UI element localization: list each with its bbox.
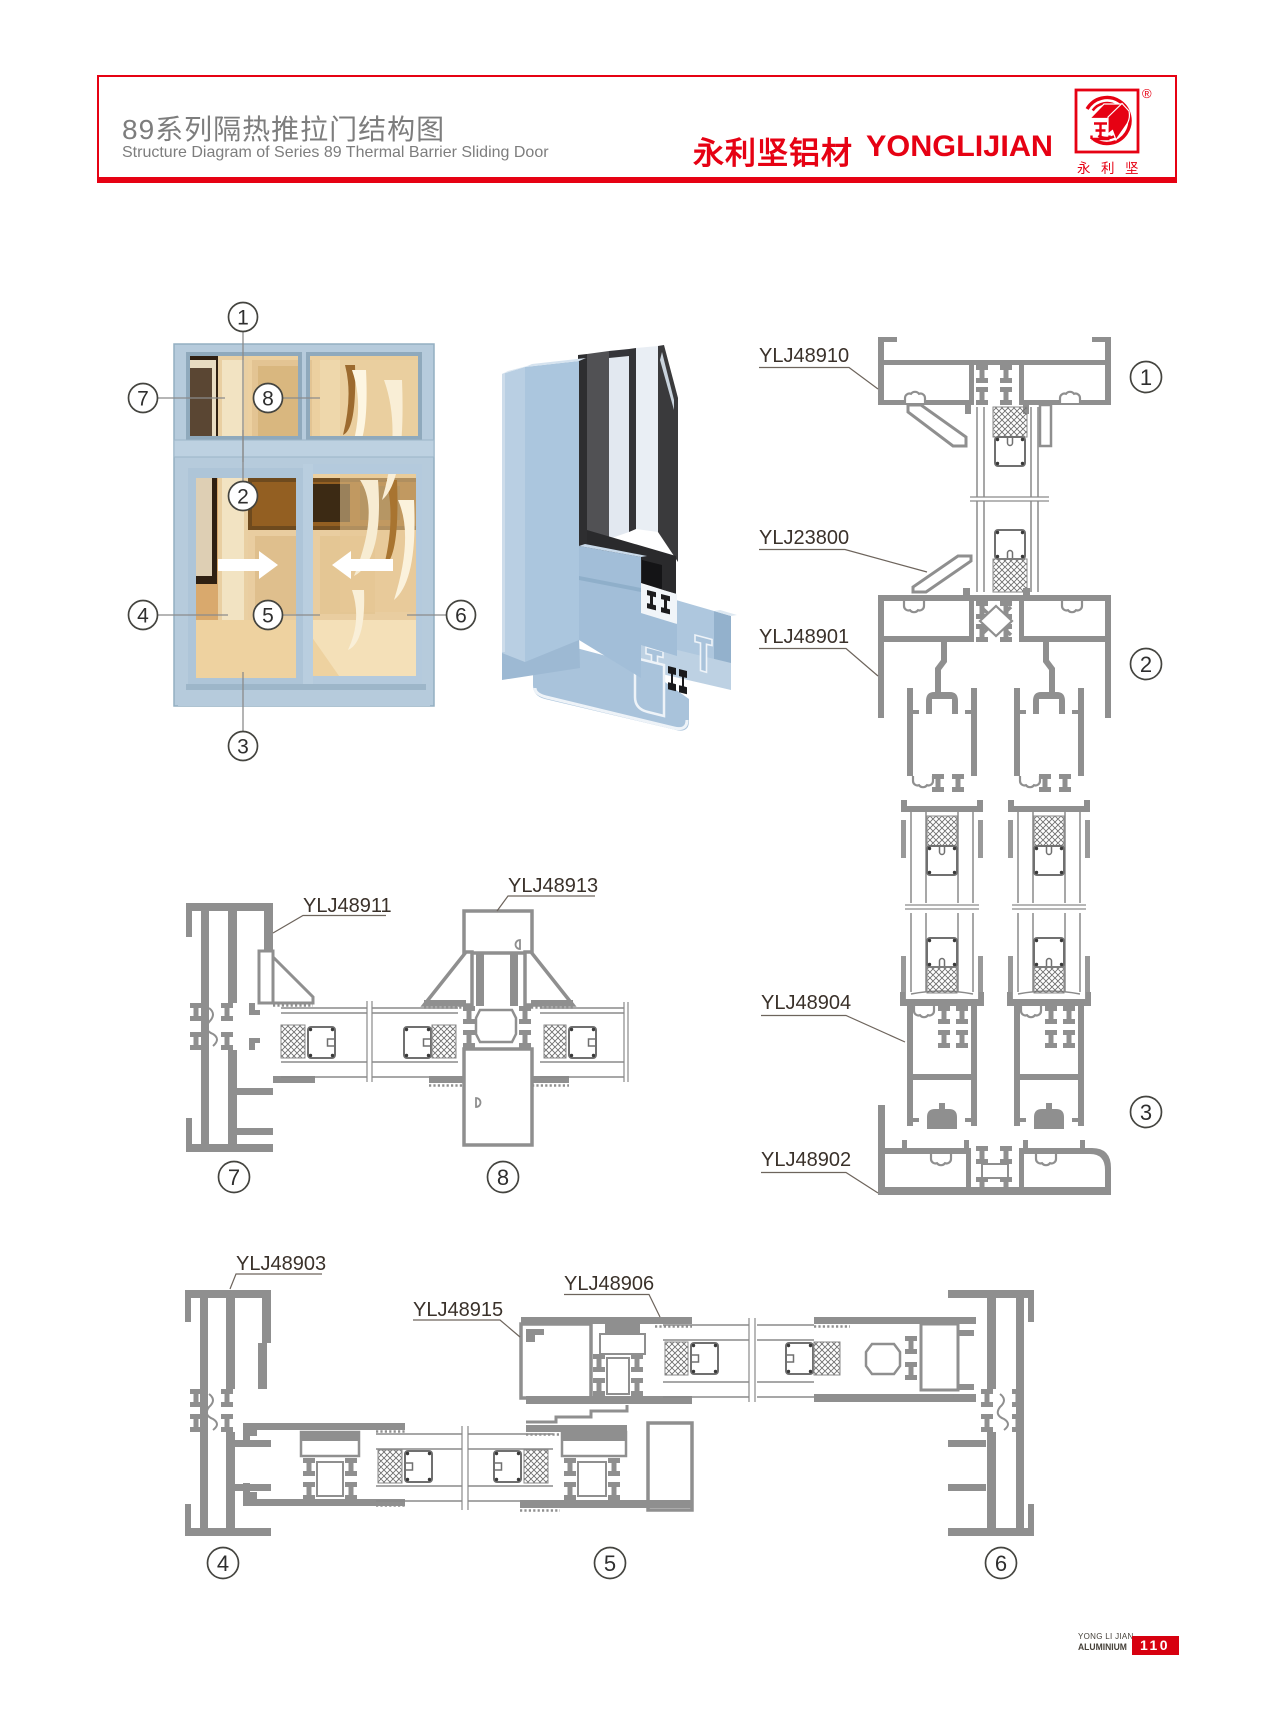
svg-text:6: 6 <box>995 1551 1007 1576</box>
svg-text:7: 7 <box>228 1165 240 1190</box>
svg-text:4: 4 <box>137 605 149 628</box>
svg-text:YLJ48911: YLJ48911 <box>303 895 392 917</box>
svg-text:5: 5 <box>262 605 274 628</box>
svg-text:7: 7 <box>137 388 149 411</box>
svg-text:YLJ48901: YLJ48901 <box>759 626 849 648</box>
svg-text:YLJ48902: YLJ48902 <box>761 1149 851 1171</box>
svg-text:YLJ48906: YLJ48906 <box>564 1273 654 1295</box>
svg-text:YLJ48903: YLJ48903 <box>236 1253 326 1275</box>
svg-text:YLJ23800: YLJ23800 <box>759 527 849 549</box>
svg-text:6: 6 <box>455 605 467 628</box>
svg-text:3: 3 <box>237 736 249 759</box>
svg-text:YLJ48915: YLJ48915 <box>413 1299 503 1321</box>
svg-text:YLJ48910: YLJ48910 <box>759 345 849 367</box>
svg-text:2: 2 <box>1140 652 1152 677</box>
svg-text:2: 2 <box>237 486 249 509</box>
svg-text:4: 4 <box>217 1551 229 1576</box>
svg-text:YLJ48904: YLJ48904 <box>761 992 851 1014</box>
svg-text:1: 1 <box>1140 365 1152 390</box>
svg-text:8: 8 <box>497 1165 509 1190</box>
svg-text:1: 1 <box>237 307 249 330</box>
svg-text:5: 5 <box>604 1551 616 1576</box>
svg-text:8: 8 <box>262 388 274 411</box>
svg-text:3: 3 <box>1140 1100 1152 1125</box>
svg-text:YLJ48913: YLJ48913 <box>508 875 598 897</box>
